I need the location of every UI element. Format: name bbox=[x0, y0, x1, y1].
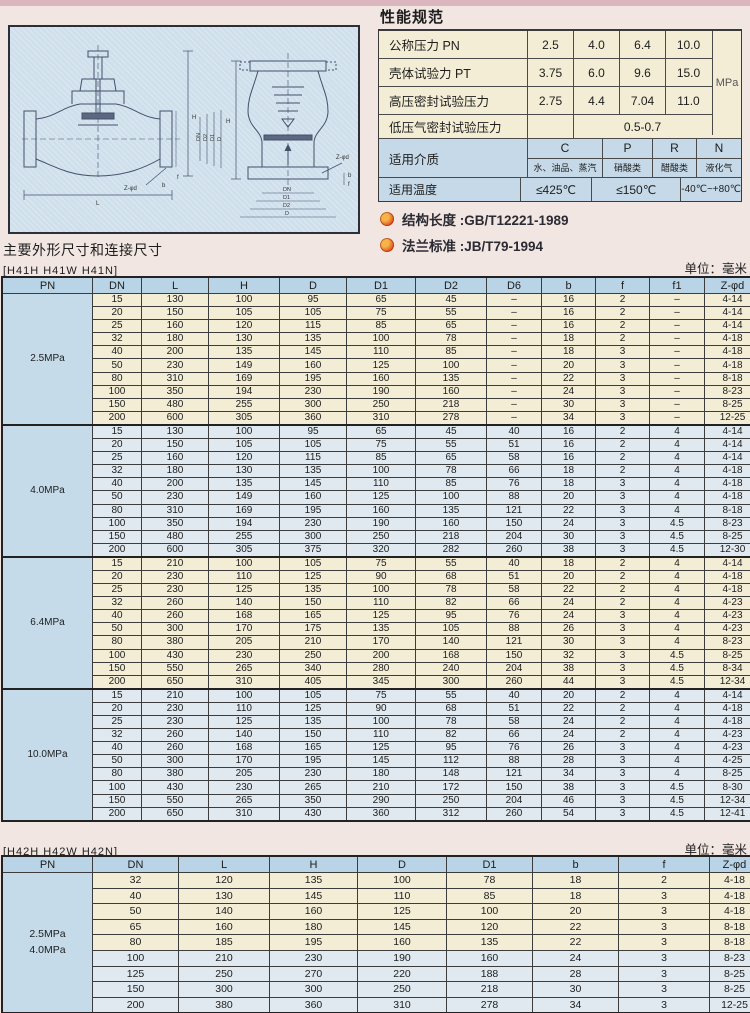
dim-cell: 18 bbox=[542, 557, 596, 571]
dim-cell: 130 bbox=[179, 888, 270, 904]
dim-cell: – bbox=[650, 359, 705, 372]
dim-cell: 4-18 bbox=[705, 346, 750, 359]
spec-value: 4.0 bbox=[573, 31, 619, 58]
table-row: 2516012011585655816244-14 bbox=[2, 452, 750, 465]
dim-cell: 4 bbox=[650, 425, 705, 439]
dim-cell: 600 bbox=[142, 411, 209, 425]
dim-cell: 205 bbox=[209, 636, 280, 649]
dim-cell: 26 bbox=[542, 623, 596, 636]
dim-cell: 300 bbox=[280, 530, 347, 543]
dim-cell: 22 bbox=[542, 702, 596, 715]
dim-cell: 3 bbox=[619, 919, 710, 935]
table-row: 1004302302652101721503834.58-30 bbox=[2, 781, 750, 794]
table-row: 3218013013510078–182–4-18 bbox=[2, 333, 750, 346]
dim-cell: 3 bbox=[596, 662, 650, 675]
dim-cell: 32 bbox=[93, 873, 179, 889]
dim-cell: 130 bbox=[142, 425, 209, 439]
dim-cell: 160 bbox=[142, 320, 209, 333]
media-code: C bbox=[527, 139, 602, 158]
dim-cell: 76 bbox=[487, 742, 542, 755]
dim-cell: 310 bbox=[347, 411, 416, 425]
dim-label-d2: D2 bbox=[203, 134, 209, 141]
dim-cell: 16 bbox=[542, 439, 596, 452]
dim-cell: 110 bbox=[347, 346, 416, 359]
dim-cell: 180 bbox=[142, 465, 209, 478]
spec-value: 4.4 bbox=[573, 87, 619, 114]
dim-cell: 75 bbox=[347, 307, 416, 320]
dim-cell: 190 bbox=[358, 950, 447, 966]
note-text: 结构长度 :GB/T12221-1989 bbox=[402, 209, 569, 229]
dim-cell: 78 bbox=[416, 584, 487, 597]
spec-value: 10.0 bbox=[665, 31, 711, 58]
table-row: 1505502653402802402043834.58-34 bbox=[2, 662, 750, 675]
dim-cell: 4 bbox=[650, 452, 705, 465]
dim-label-d1-right: D1 bbox=[283, 195, 290, 201]
dim-cell: 210 bbox=[142, 689, 209, 703]
performance-spec-section: 性能规范 公称压力 PN 2.5 4.0 6.4 10.0 壳体试验力 PT 3… bbox=[378, 5, 742, 255]
dim-cell: 82 bbox=[416, 597, 487, 610]
dim-cell: 160 bbox=[280, 359, 347, 372]
dim-cell: 550 bbox=[142, 662, 209, 675]
dim-cell: 8-18 bbox=[705, 504, 750, 517]
dim-cell: 210 bbox=[280, 636, 347, 649]
column-header: D6 bbox=[487, 277, 542, 294]
dim-cell: 24 bbox=[542, 385, 596, 398]
note-structure-length: 结构长度 :GB/T12221-1989 bbox=[378, 209, 742, 229]
dim-cell: 85 bbox=[447, 888, 533, 904]
dim-cell: 260 bbox=[487, 543, 542, 557]
dim-cell: 100 bbox=[347, 716, 416, 729]
dim-cell: 22 bbox=[542, 372, 596, 385]
dim-cell: – bbox=[650, 320, 705, 333]
dim-cell: 24 bbox=[542, 716, 596, 729]
dim-cell: 100 bbox=[209, 689, 280, 703]
dim-cell: 100 bbox=[209, 557, 280, 571]
column-header: L bbox=[142, 277, 209, 294]
dim-label-d2-right: D2 bbox=[283, 203, 290, 209]
table-row: 80310169195160135–223–8-18 bbox=[2, 372, 750, 385]
dim-cell: 2 bbox=[596, 716, 650, 729]
dim-cell: 95 bbox=[280, 294, 347, 307]
dim-cell: 130 bbox=[142, 294, 209, 307]
dim-cell: 4-23 bbox=[705, 742, 750, 755]
spec-row-label: 公称压力 PN bbox=[379, 31, 527, 58]
dim-cell: 8-30 bbox=[705, 781, 750, 794]
dim-label-h-right: H bbox=[226, 119, 230, 125]
dim-cell: 112 bbox=[416, 755, 487, 768]
dim-cell: 100 bbox=[347, 584, 416, 597]
dim-cell: 25 bbox=[93, 320, 142, 333]
dim-cell: 3 bbox=[596, 346, 650, 359]
dim-cell: 100 bbox=[93, 517, 142, 530]
dim-cell: 4 bbox=[650, 610, 705, 623]
dim-cell: 125 bbox=[347, 491, 416, 504]
dim-cell: 20 bbox=[542, 491, 596, 504]
dim-cell: 375 bbox=[280, 543, 347, 557]
media-grid: C P R N 水、油品、蒸汽 硝酸类 醋酸类 液化气 bbox=[527, 139, 741, 177]
dim-cell: 230 bbox=[270, 950, 358, 966]
column-header: PN bbox=[2, 856, 93, 873]
table-row: 2006503104303603122605434.512-41 bbox=[2, 807, 750, 821]
dim-cell: 145 bbox=[280, 346, 347, 359]
dim-cell: – bbox=[650, 346, 705, 359]
dim-cell: 20 bbox=[93, 570, 142, 583]
dim-cell: 78 bbox=[416, 333, 487, 346]
dim-cell: 430 bbox=[280, 807, 347, 821]
spec-value: 15.0 bbox=[665, 59, 711, 86]
dim-cell: 78 bbox=[416, 716, 487, 729]
dim-cell: 4 bbox=[650, 716, 705, 729]
spec-row-pn: 公称压力 PN 2.5 4.0 6.4 10.0 bbox=[379, 31, 741, 58]
dim-cell: 430 bbox=[142, 649, 209, 662]
dim-cell: 4.5 bbox=[650, 543, 705, 557]
dim-label-f: f bbox=[177, 175, 179, 181]
dim-cell: 110 bbox=[358, 888, 447, 904]
dim-cell: 4-23 bbox=[705, 729, 750, 742]
dim-cell: 22 bbox=[542, 584, 596, 597]
dim-cell: – bbox=[487, 307, 542, 320]
dim-cell: 350 bbox=[280, 794, 347, 807]
dim-label-b: b bbox=[162, 183, 166, 189]
dim-cell: 120 bbox=[179, 873, 270, 889]
dim-cell: 125 bbox=[347, 610, 416, 623]
dim-cell: 550 bbox=[142, 794, 209, 807]
dim-cell: 204 bbox=[487, 662, 542, 675]
table-row: 1002102301901602438-23 bbox=[2, 950, 750, 966]
flower-bullet-icon bbox=[380, 238, 394, 252]
media-name: 硝酸类 bbox=[602, 159, 652, 178]
dim-cell: 4-18 bbox=[705, 491, 750, 504]
dim-cell: 65 bbox=[416, 452, 487, 465]
dim-cell: 4-18 bbox=[705, 570, 750, 583]
h42-dimensions-table: PNDNLHDD1bfZ-φd2.5MPa4.0MPa3212013510078… bbox=[1, 855, 750, 1013]
dim-cell: 75 bbox=[347, 557, 416, 571]
dim-cell: 8-18 bbox=[710, 919, 750, 935]
pn-group-label: 10.0MPa bbox=[2, 689, 93, 821]
dim-cell: 170 bbox=[209, 623, 280, 636]
table-row: 40130145110851834-18 bbox=[2, 888, 750, 904]
dim-cell: 190 bbox=[347, 517, 416, 530]
dim-label-d-right: D bbox=[285, 211, 289, 217]
dim-cell: 75 bbox=[347, 689, 416, 703]
dim-cell: 105 bbox=[416, 623, 487, 636]
dim-cell: 3 bbox=[596, 755, 650, 768]
dim-cell: 200 bbox=[142, 478, 209, 491]
table-row: 40260168165125957624344-23 bbox=[2, 610, 750, 623]
dim-cell: 110 bbox=[209, 702, 280, 715]
dim-cell: 40 bbox=[93, 610, 142, 623]
dim-cell: 55 bbox=[416, 557, 487, 571]
dim-cell: 4-14 bbox=[705, 439, 750, 452]
dim-cell: 44 bbox=[542, 675, 596, 689]
dim-cell: 15 bbox=[93, 294, 142, 307]
dim-cell: 4-18 bbox=[705, 333, 750, 346]
dim-cell: 3 bbox=[596, 623, 650, 636]
dim-cell: 2 bbox=[596, 570, 650, 583]
column-header: H bbox=[270, 856, 358, 873]
table-row: 251601201158565–162–4-14 bbox=[2, 320, 750, 333]
dim-label-b-right: b bbox=[348, 173, 352, 179]
dim-cell: 190 bbox=[347, 385, 416, 398]
dim-cell: 100 bbox=[416, 491, 487, 504]
dim-cell: 32 bbox=[93, 729, 142, 742]
spec-table: 公称压力 PN 2.5 4.0 6.4 10.0 壳体试验力 PT 3.75 6… bbox=[378, 31, 742, 202]
dim-cell: 4-23 bbox=[705, 623, 750, 636]
dim-cell: 145 bbox=[270, 888, 358, 904]
dim-cell: 260 bbox=[142, 742, 209, 755]
valve-cross-section-drawing: H L Z-φd b f DN D2 D1 D H DN D1 D2 D Z-φ… bbox=[10, 27, 358, 228]
dim-cell: 4.5 bbox=[650, 662, 705, 675]
dim-cell: 110 bbox=[347, 729, 416, 742]
dim-cell: 650 bbox=[142, 675, 209, 689]
dim-cell: 4 bbox=[650, 768, 705, 781]
column-header: D2 bbox=[416, 277, 487, 294]
dim-cell: 110 bbox=[347, 597, 416, 610]
dim-cell: 4-25 bbox=[705, 755, 750, 768]
spec-row-low-seal: 低压气密封试验压力 0.5-0.7 bbox=[379, 114, 741, 138]
dim-cell: 2 bbox=[596, 294, 650, 307]
dim-cell: 4.5 bbox=[650, 517, 705, 530]
dim-cell: 160 bbox=[358, 935, 447, 951]
dim-cell: 85 bbox=[347, 320, 416, 333]
dim-cell: 32 bbox=[93, 597, 142, 610]
dim-cell: 100 bbox=[447, 904, 533, 920]
dim-cell: 250 bbox=[179, 966, 270, 982]
dim-cell: 30 bbox=[542, 636, 596, 649]
dim-cell: 4 bbox=[650, 623, 705, 636]
table-row: 32260140150110826624244-23 bbox=[2, 597, 750, 610]
dim-cell: 4.5 bbox=[650, 675, 705, 689]
dim-cell: 4.5 bbox=[650, 807, 705, 821]
column-header: f bbox=[619, 856, 710, 873]
dim-cell: 15 bbox=[93, 425, 142, 439]
dim-cell: 90 bbox=[347, 702, 416, 715]
dim-cell: 2 bbox=[596, 320, 650, 333]
dim-cell: 38 bbox=[542, 543, 596, 557]
dim-cell: 2 bbox=[596, 307, 650, 320]
dim-cell: 135 bbox=[416, 504, 487, 517]
dim-cell: 130 bbox=[209, 465, 280, 478]
dim-cell: 160 bbox=[347, 504, 416, 517]
dim-cell: 18 bbox=[542, 333, 596, 346]
spec-row-pt: 壳体试验力 PT 3.75 6.0 9.6 15.0 bbox=[379, 58, 741, 86]
catalog-page: H L Z-φd b f DN D2 D1 D H DN D1 D2 D Z-φ… bbox=[0, 0, 750, 1013]
dim-cell: 51 bbox=[487, 439, 542, 452]
dim-cell: 2 bbox=[596, 689, 650, 703]
dim-cell: 210 bbox=[179, 950, 270, 966]
dim-cell: 135 bbox=[209, 478, 280, 491]
dim-cell: 18 bbox=[542, 465, 596, 478]
h41-dimensions-table: PNDNLHDD1D2D6bff1Z-φd2.5MPa1513010095654… bbox=[1, 276, 750, 822]
dim-cell: 260 bbox=[487, 675, 542, 689]
dim-cell: 200 bbox=[93, 675, 142, 689]
dim-cell: 195 bbox=[280, 504, 347, 517]
dim-cell: 160 bbox=[416, 517, 487, 530]
dim-cell: 430 bbox=[142, 781, 209, 794]
dim-cell: 105 bbox=[280, 439, 347, 452]
column-header: b bbox=[533, 856, 619, 873]
dim-cell: 16 bbox=[542, 425, 596, 439]
dim-cell: 65 bbox=[416, 320, 487, 333]
dim-cell: 8-25 bbox=[705, 649, 750, 662]
dim-cell: 145 bbox=[347, 755, 416, 768]
dim-cell: 169 bbox=[209, 504, 280, 517]
dim-cell: 480 bbox=[142, 530, 209, 543]
dim-cell: 50 bbox=[93, 904, 179, 920]
dim-cell: 650 bbox=[142, 807, 209, 821]
dim-cell: 160 bbox=[142, 452, 209, 465]
dim-label-l: L bbox=[96, 201, 100, 207]
dim-cell: 149 bbox=[209, 359, 280, 372]
dim-cell: 2 bbox=[596, 439, 650, 452]
table-row: 2023011012590685120244-18 bbox=[2, 570, 750, 583]
dim-cell: 168 bbox=[416, 649, 487, 662]
dim-label-d1: D1 bbox=[210, 134, 216, 141]
dim-cell: 65 bbox=[93, 919, 179, 935]
dim-cell: 82 bbox=[416, 729, 487, 742]
unit-label: 单位：毫米 bbox=[684, 258, 747, 277]
dim-cell: 22 bbox=[533, 919, 619, 935]
dim-cell: 55 bbox=[416, 689, 487, 703]
dim-cell: 100 bbox=[93, 649, 142, 662]
dim-cell: 20 bbox=[533, 904, 619, 920]
dim-cell: 250 bbox=[358, 982, 447, 998]
dim-cell: 125 bbox=[93, 966, 179, 982]
table-row: 2015010510575555116244-14 bbox=[2, 439, 750, 452]
dim-cell: 250 bbox=[280, 649, 347, 662]
spec-row-label: 壳体试验力 PT bbox=[379, 59, 527, 86]
dim-cell: 310 bbox=[209, 807, 280, 821]
dim-cell: 3 bbox=[596, 649, 650, 662]
column-header: f1 bbox=[650, 277, 705, 294]
dim-cell: 88 bbox=[487, 491, 542, 504]
dim-cell: 188 bbox=[447, 966, 533, 982]
dim-cell: 12-34 bbox=[705, 675, 750, 689]
dim-cell: 3 bbox=[619, 982, 710, 998]
dim-cell: 3 bbox=[596, 781, 650, 794]
temp-value: ≤425℃ bbox=[520, 178, 591, 201]
spec-row-label: 低压气密封试验压力 bbox=[379, 115, 527, 138]
table-row: 2.5MPa4.0MPa32120135100781824-18 bbox=[2, 873, 750, 889]
pn-group-label: 6.4MPa bbox=[2, 557, 93, 689]
dim-cell: 200 bbox=[93, 997, 179, 1013]
dim-cell: 380 bbox=[179, 997, 270, 1013]
dim-cell: 149 bbox=[209, 491, 280, 504]
dim-cell: 8-23 bbox=[710, 950, 750, 966]
dim-label-dn: DN bbox=[196, 133, 202, 141]
column-header: D1 bbox=[347, 277, 416, 294]
dim-cell: 20 bbox=[93, 702, 142, 715]
dim-cell: 125 bbox=[347, 742, 416, 755]
dim-cell: 2 bbox=[596, 729, 650, 742]
dim-cell: 360 bbox=[280, 411, 347, 425]
table-row: 1503003002502183038-25 bbox=[2, 982, 750, 998]
dim-cell: 169 bbox=[209, 372, 280, 385]
table-row: 501401601251002034-18 bbox=[2, 904, 750, 920]
table-row: 100350194230190160–243–8-23 bbox=[2, 385, 750, 398]
dim-cell: 135 bbox=[447, 935, 533, 951]
dim-cell: 4.5 bbox=[650, 649, 705, 662]
dim-cell: 4 bbox=[650, 702, 705, 715]
dim-cell: 8-34 bbox=[705, 662, 750, 675]
dim-cell: 58 bbox=[487, 716, 542, 729]
dim-cell: 125 bbox=[358, 904, 447, 920]
dim-cell: 125 bbox=[209, 584, 280, 597]
spec-value: 7.04 bbox=[619, 87, 665, 114]
dim-cell: 125 bbox=[280, 570, 347, 583]
dim-cell: 140 bbox=[179, 904, 270, 920]
dim-cell: 360 bbox=[270, 997, 358, 1013]
dim-cell: – bbox=[487, 411, 542, 425]
dim-cell: 310 bbox=[142, 372, 209, 385]
dim-cell: 28 bbox=[533, 966, 619, 982]
dim-cell: – bbox=[487, 294, 542, 307]
dim-cell: 4 bbox=[650, 465, 705, 478]
table-row: 25230125135100785824244-18 bbox=[2, 716, 750, 729]
dim-cell: 3 bbox=[619, 888, 710, 904]
dim-cell: 150 bbox=[487, 517, 542, 530]
spec-row-high-seal: 高压密封试验压力 2.75 4.4 7.04 11.0 bbox=[379, 86, 741, 114]
dim-cell: 3 bbox=[596, 794, 650, 807]
dim-cell: 24 bbox=[542, 517, 596, 530]
dim-cell: 4-18 bbox=[710, 904, 750, 920]
dim-cell: 25 bbox=[93, 452, 142, 465]
dim-cell: 205 bbox=[209, 768, 280, 781]
dim-cell: 58 bbox=[487, 584, 542, 597]
dim-cell: 168 bbox=[209, 610, 280, 623]
dim-cell: 278 bbox=[416, 411, 487, 425]
dim-cell: 230 bbox=[142, 570, 209, 583]
dim-cell: 230 bbox=[209, 781, 280, 794]
dim-cell: 2 bbox=[596, 584, 650, 597]
column-header: L bbox=[179, 856, 270, 873]
dim-cell: 85 bbox=[347, 452, 416, 465]
table-row: 10.0MPa1521010010575554020244-14 bbox=[2, 689, 750, 703]
dim-cell: 20 bbox=[542, 689, 596, 703]
dim-cell: 8-18 bbox=[705, 372, 750, 385]
dim-cell: 115 bbox=[280, 320, 347, 333]
dim-cell: 194 bbox=[209, 385, 280, 398]
dim-cell: 100 bbox=[93, 950, 179, 966]
dim-cell: 20 bbox=[542, 570, 596, 583]
dim-cell: 24 bbox=[533, 950, 619, 966]
dim-cell: 150 bbox=[93, 530, 142, 543]
spec-value-empty bbox=[527, 115, 573, 138]
dim-cell: 12-30 bbox=[705, 543, 750, 557]
dim-cell: 100 bbox=[93, 781, 142, 794]
dim-cell: 4 bbox=[650, 491, 705, 504]
dim-cell: 135 bbox=[280, 465, 347, 478]
dim-cell: 200 bbox=[347, 649, 416, 662]
dim-cell: 40 bbox=[487, 557, 542, 571]
dim-cell: 4-18 bbox=[710, 873, 750, 889]
dim-cell: 350 bbox=[142, 385, 209, 398]
table-row: 1504802553002502182043034.58-25 bbox=[2, 530, 750, 543]
dim-cell: – bbox=[650, 398, 705, 411]
pn-group-label: 2.5MPa bbox=[2, 294, 93, 425]
dim-cell: 195 bbox=[270, 935, 358, 951]
dim-cell: – bbox=[487, 346, 542, 359]
dim-cell: 230 bbox=[280, 385, 347, 398]
dim-cell: 250 bbox=[347, 398, 416, 411]
dim-cell: 4 bbox=[650, 742, 705, 755]
dim-cell: 12-41 bbox=[705, 807, 750, 821]
dim-cell: 51 bbox=[487, 702, 542, 715]
dim-cell: 230 bbox=[209, 649, 280, 662]
dim-cell: 95 bbox=[416, 742, 487, 755]
dim-cell: 230 bbox=[142, 584, 209, 597]
media-code: N bbox=[696, 139, 741, 158]
